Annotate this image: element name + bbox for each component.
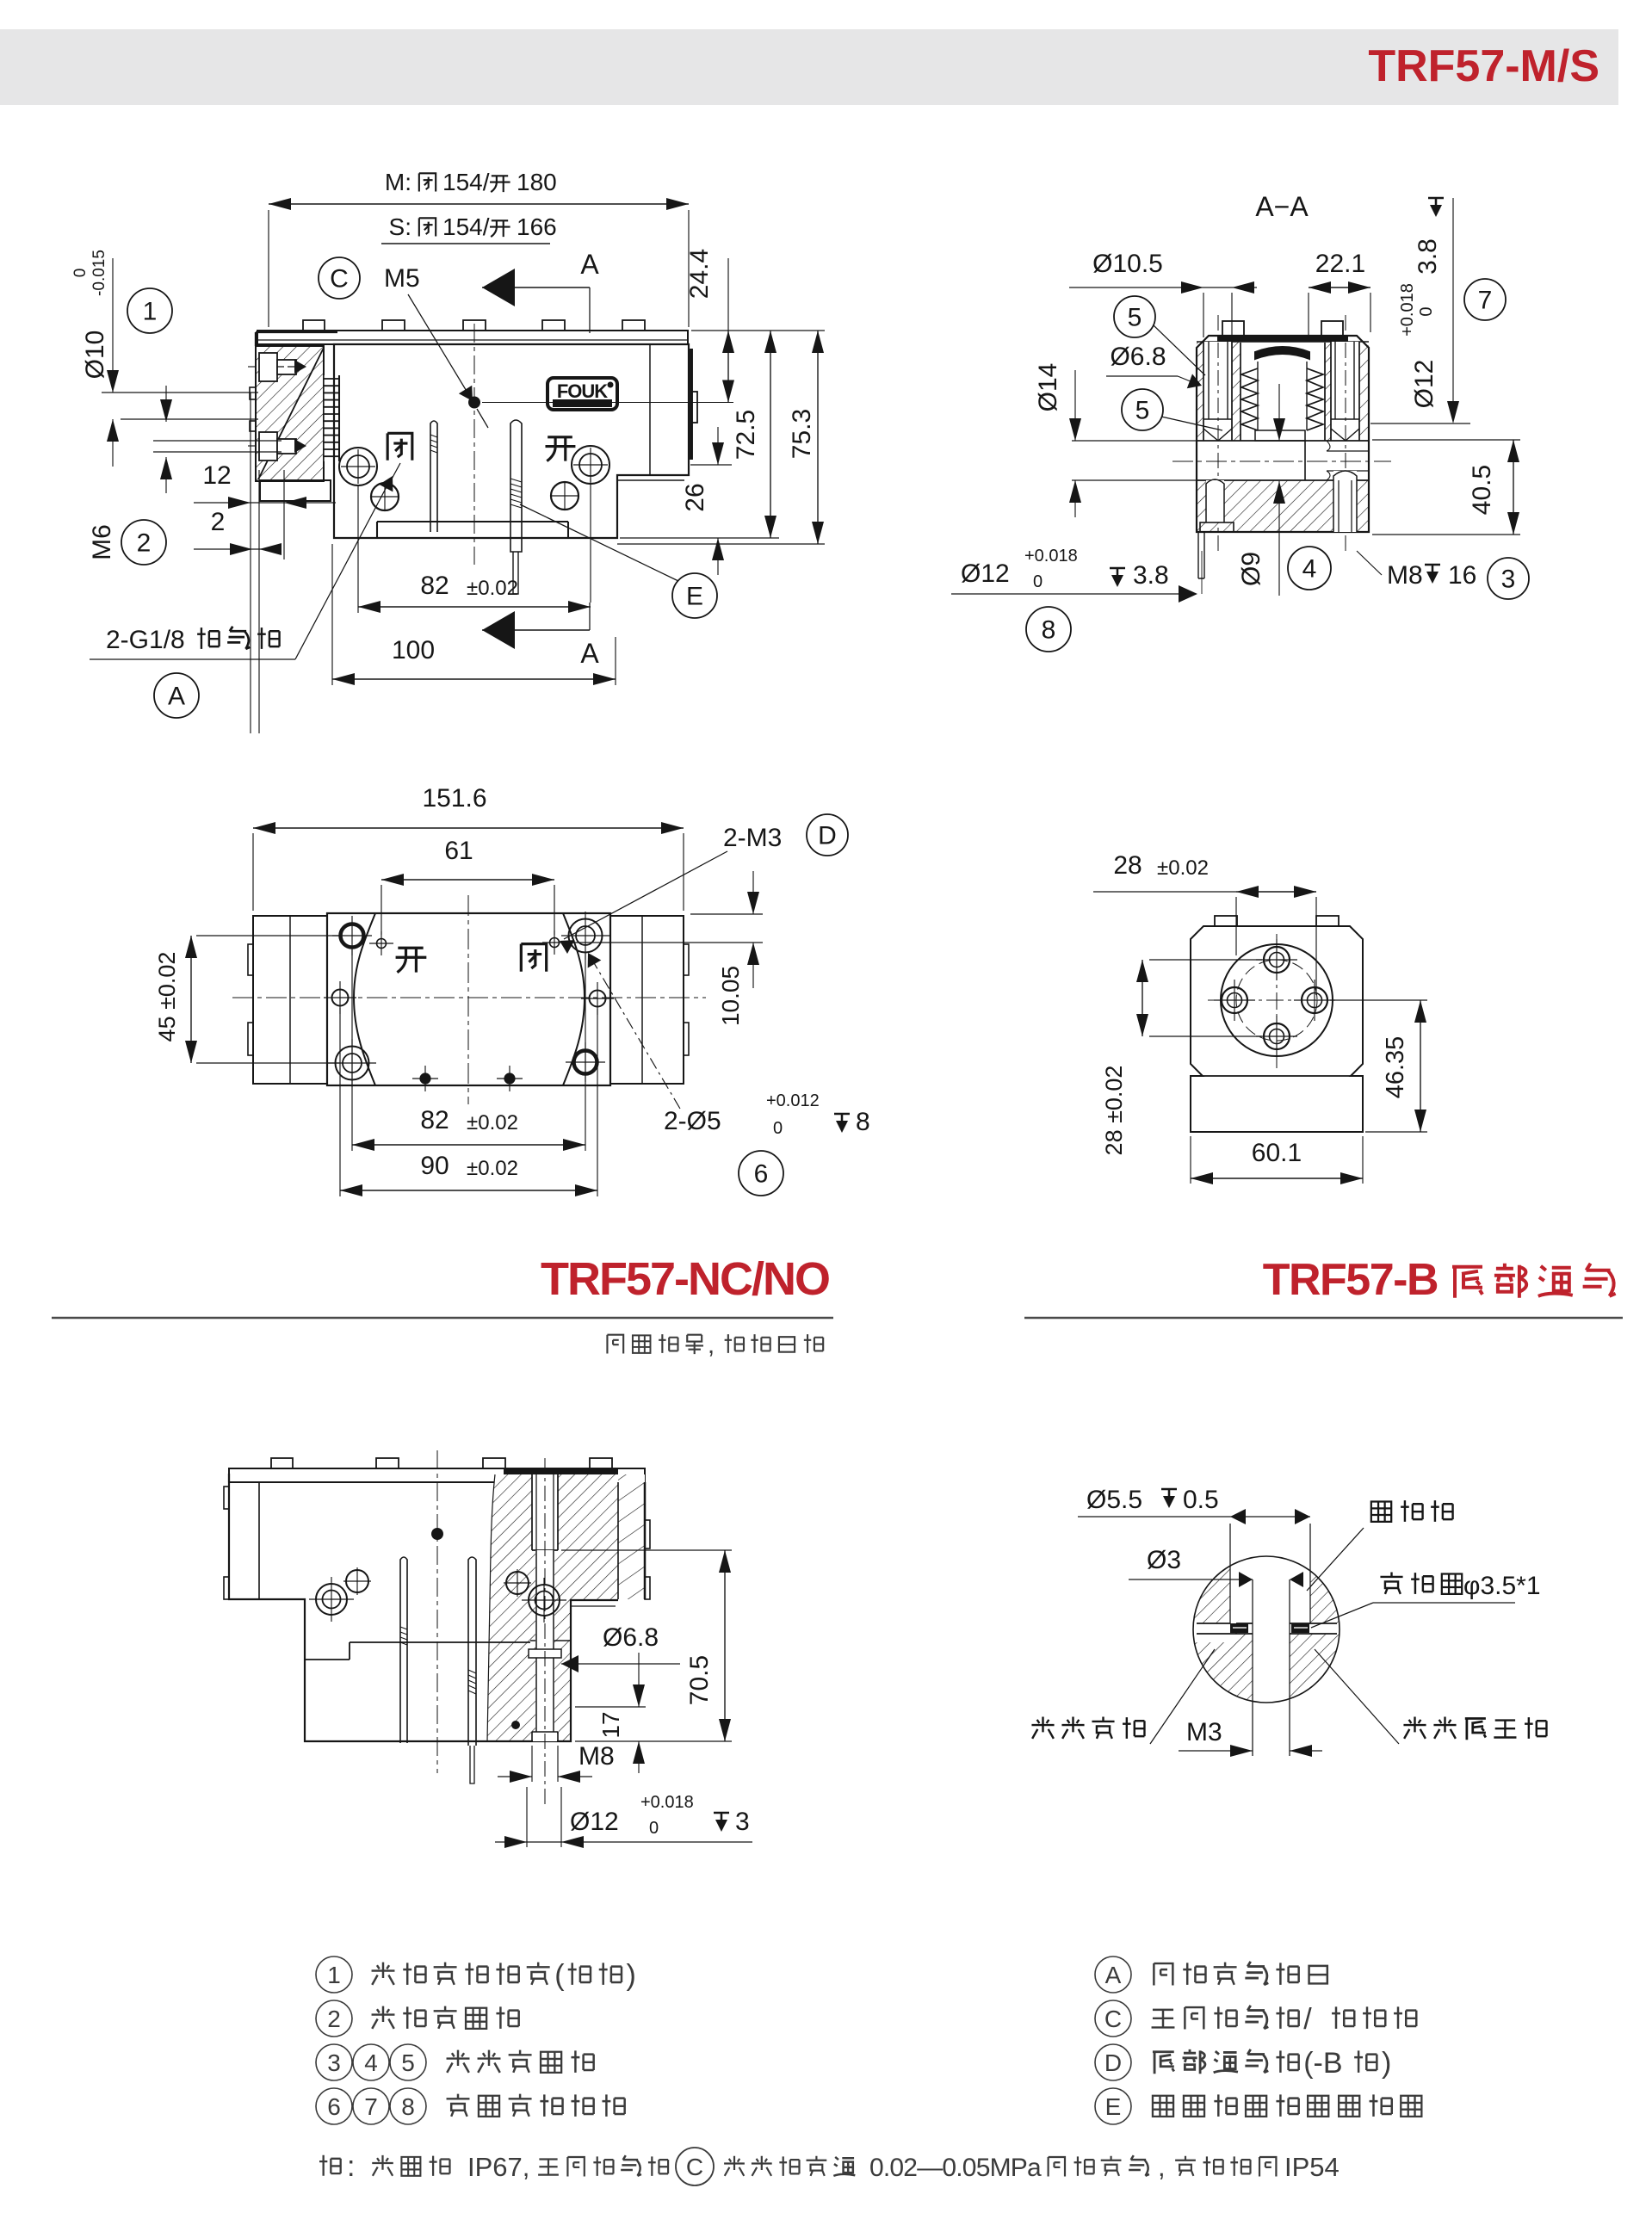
svg-text:22.1: 22.1: [1315, 250, 1365, 278]
svg-text:(: (: [554, 1959, 565, 1992]
svg-text:2-G1/8: 2-G1/8: [106, 626, 185, 654]
svg-text:): ): [627, 1959, 636, 1992]
svg-text:0: 0: [1033, 572, 1043, 591]
svg-text:D: D: [818, 822, 837, 850]
svg-text:28: 28: [1113, 851, 1142, 880]
svg-text:1: 1: [143, 298, 158, 326]
svg-text:-0.015: -0.015: [90, 250, 108, 296]
svg-text:M8: M8: [579, 1742, 615, 1771]
svg-text:75.3: 75.3: [788, 409, 816, 459]
svg-text:+0.012: +0.012: [766, 1091, 820, 1110]
svg-text:3: 3: [327, 2049, 341, 2076]
svg-text:24.4: 24.4: [685, 249, 714, 299]
svg-text:6: 6: [327, 2093, 341, 2120]
svg-text:S:: S:: [389, 213, 411, 240]
svg-text:Ø10: Ø10: [81, 331, 109, 380]
svg-text:0: 0: [649, 1819, 659, 1838]
svg-text:A: A: [1105, 1962, 1122, 1988]
svg-text:1: 1: [327, 1962, 341, 1988]
svg-text:/: /: [1303, 2003, 1312, 2036]
svg-text:45 ±0.02: 45 ±0.02: [154, 952, 180, 1042]
svg-text:4: 4: [364, 2049, 378, 2076]
svg-text:17: 17: [597, 1711, 624, 1738]
svg-text:Ø6.8: Ø6.8: [603, 1623, 659, 1652]
svg-text:8: 8: [401, 2093, 415, 2120]
svg-text:70.5: 70.5: [685, 1655, 714, 1705]
svg-text:M:: M:: [385, 169, 411, 195]
svg-text:0.5: 0.5: [1183, 1486, 1219, 1514]
svg-text:TRF57-B: TRF57-B: [1263, 1255, 1438, 1305]
svg-text:0: 0: [773, 1119, 783, 1138]
svg-text:,: ,: [1158, 2152, 1166, 2182]
svg-text:72.5: 72.5: [732, 410, 760, 460]
svg-text:3.8: 3.8: [1133, 561, 1169, 590]
svg-text:151.6: 151.6: [422, 784, 486, 813]
svg-text:0: 0: [1417, 306, 1436, 316]
svg-text:Ø6.8: Ø6.8: [1110, 343, 1166, 371]
svg-text:A: A: [168, 683, 185, 711]
svg-text:C: C: [1104, 2006, 1122, 2032]
svg-text:5: 5: [401, 2049, 415, 2076]
svg-text:90: 90: [420, 1152, 449, 1180]
svg-text:M5: M5: [384, 264, 420, 293]
svg-text:E: E: [686, 583, 703, 611]
svg-text:0.02—0.05MPa: 0.02—0.05MPa: [869, 2154, 1042, 2182]
svg-text:+0.018: +0.018: [640, 1793, 694, 1812]
svg-text:166: 166: [517, 213, 557, 240]
svg-text:154/: 154/: [442, 169, 490, 195]
svg-text:Ø10.5: Ø10.5: [1092, 250, 1163, 278]
svg-text:): ): [1382, 2047, 1391, 2080]
svg-text:3.8: 3.8: [1414, 238, 1442, 275]
svg-text:IP54: IP54: [1284, 2152, 1340, 2182]
svg-text:E: E: [1105, 2093, 1122, 2120]
svg-text:5: 5: [1128, 304, 1142, 332]
svg-text:2-M3: 2-M3: [723, 824, 782, 852]
svg-text:7: 7: [364, 2093, 378, 2120]
svg-text:TRF57-M/S: TRF57-M/S: [1368, 41, 1599, 91]
svg-text:Ø12: Ø12: [961, 559, 1010, 588]
svg-text:C: C: [686, 2154, 703, 2180]
svg-text:2: 2: [137, 529, 152, 558]
svg-text:82: 82: [420, 572, 449, 600]
svg-text:82: 82: [420, 1106, 449, 1134]
svg-text:M8: M8: [1387, 561, 1423, 590]
svg-text:Ø5.5: Ø5.5: [1086, 1486, 1142, 1514]
svg-text:8: 8: [1042, 616, 1056, 645]
svg-text:±0.02: ±0.02: [467, 577, 518, 600]
svg-text:6: 6: [754, 1160, 769, 1189]
svg-text:TRF57-NC/NO: TRF57-NC/NO: [541, 1253, 829, 1305]
svg-text:0: 0: [71, 269, 90, 278]
svg-text:+0.018: +0.018: [1398, 283, 1417, 337]
svg-text:8: 8: [856, 1108, 870, 1136]
svg-text:2-Ø5: 2-Ø5: [664, 1107, 721, 1135]
svg-text:100: 100: [392, 636, 435, 665]
svg-text:2: 2: [211, 508, 226, 536]
svg-text:(-B: (-B: [1303, 2047, 1342, 2080]
svg-text::: :: [347, 2150, 355, 2183]
svg-text:Ø3: Ø3: [1147, 1546, 1181, 1574]
svg-text:2: 2: [327, 2006, 341, 2032]
svg-text:M3: M3: [1186, 1718, 1222, 1746]
svg-text:60.1: 60.1: [1252, 1139, 1302, 1167]
svg-text:IP67,: IP67,: [467, 2152, 529, 2182]
svg-text:154/: 154/: [442, 213, 490, 240]
svg-text:3: 3: [735, 1808, 750, 1836]
svg-text:16: 16: [1448, 561, 1476, 590]
svg-text:46.35: 46.35: [1382, 1036, 1409, 1099]
svg-text:A: A: [580, 638, 599, 669]
svg-text:180: 180: [517, 169, 557, 195]
svg-text:,: ,: [708, 1331, 715, 1359]
svg-text:7: 7: [1478, 287, 1493, 315]
svg-text:FOUK: FOUK: [557, 380, 608, 402]
svg-text:40.5: 40.5: [1468, 465, 1496, 515]
svg-text:Ø12: Ø12: [1410, 360, 1439, 409]
svg-text:61: 61: [444, 837, 473, 865]
svg-text:5: 5: [1135, 397, 1150, 425]
svg-text:12: 12: [202, 461, 231, 490]
svg-text:D: D: [1104, 2049, 1122, 2076]
svg-text:10.05: 10.05: [717, 966, 744, 1026]
svg-text:C: C: [330, 265, 349, 294]
svg-text:±0.02: ±0.02: [467, 1157, 518, 1180]
svg-text:M6: M6: [88, 524, 116, 560]
svg-text:A−A: A−A: [1255, 191, 1309, 222]
svg-text:φ3.5*1: φ3.5*1: [1463, 1572, 1541, 1600]
svg-text:Ø9: Ø9: [1237, 552, 1265, 586]
svg-text:+0.018: +0.018: [1024, 547, 1078, 566]
svg-text:±0.02: ±0.02: [467, 1111, 518, 1134]
svg-text:4: 4: [1302, 555, 1317, 584]
svg-text:±0.02: ±0.02: [1157, 856, 1209, 880]
svg-text:Ø14: Ø14: [1034, 363, 1062, 412]
svg-text:28 ±0.02: 28 ±0.02: [1101, 1066, 1127, 1156]
svg-text:26: 26: [681, 483, 709, 511]
svg-text:A: A: [580, 249, 599, 280]
svg-text:Ø12: Ø12: [570, 1808, 619, 1836]
svg-text:3: 3: [1501, 566, 1516, 594]
